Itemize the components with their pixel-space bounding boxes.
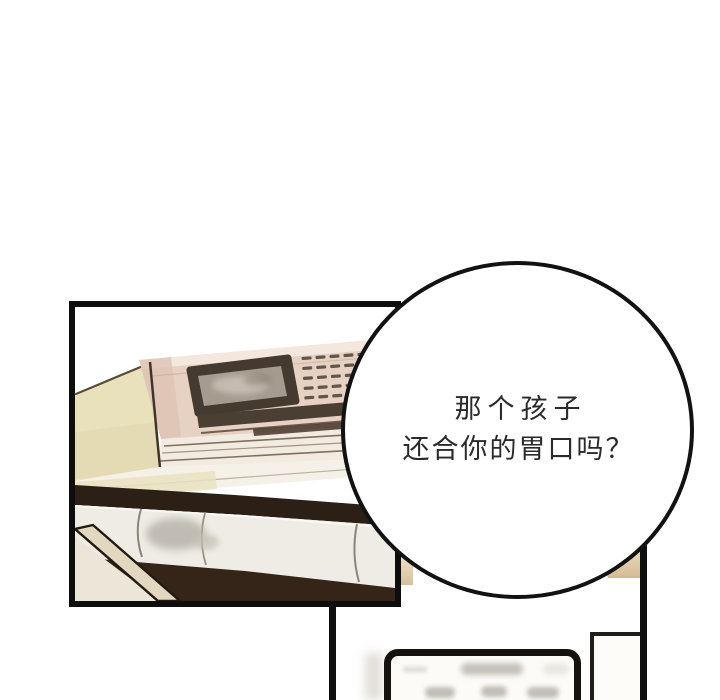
signboard-smudge-right <box>543 664 569 674</box>
signboard-smudge-3 <box>527 687 559 698</box>
speech-bubble: 那个孩子 还合你的胃口吗？ <box>341 261 694 599</box>
bottom-panel-left-border <box>329 603 336 700</box>
screen-dark-smudge <box>244 374 272 386</box>
signboard <box>384 649 581 700</box>
speech-text-line-2: 还合你的胃口吗？ <box>401 430 635 470</box>
signboard-smudge-dash <box>403 667 427 672</box>
door-frame-sketch <box>590 632 643 700</box>
signboard-smudge-title <box>461 663 523 675</box>
signboard-shadow <box>365 653 382 700</box>
rolled-paper-smudge-small <box>193 534 219 550</box>
comic-page: 那个孩子 还合你的胃口吗？ <box>0 0 720 700</box>
signboard-smudge-2 <box>481 686 507 697</box>
signboard-smudge-1 <box>425 687 455 698</box>
speech-text-line-1: 那个孩子 <box>449 390 587 430</box>
